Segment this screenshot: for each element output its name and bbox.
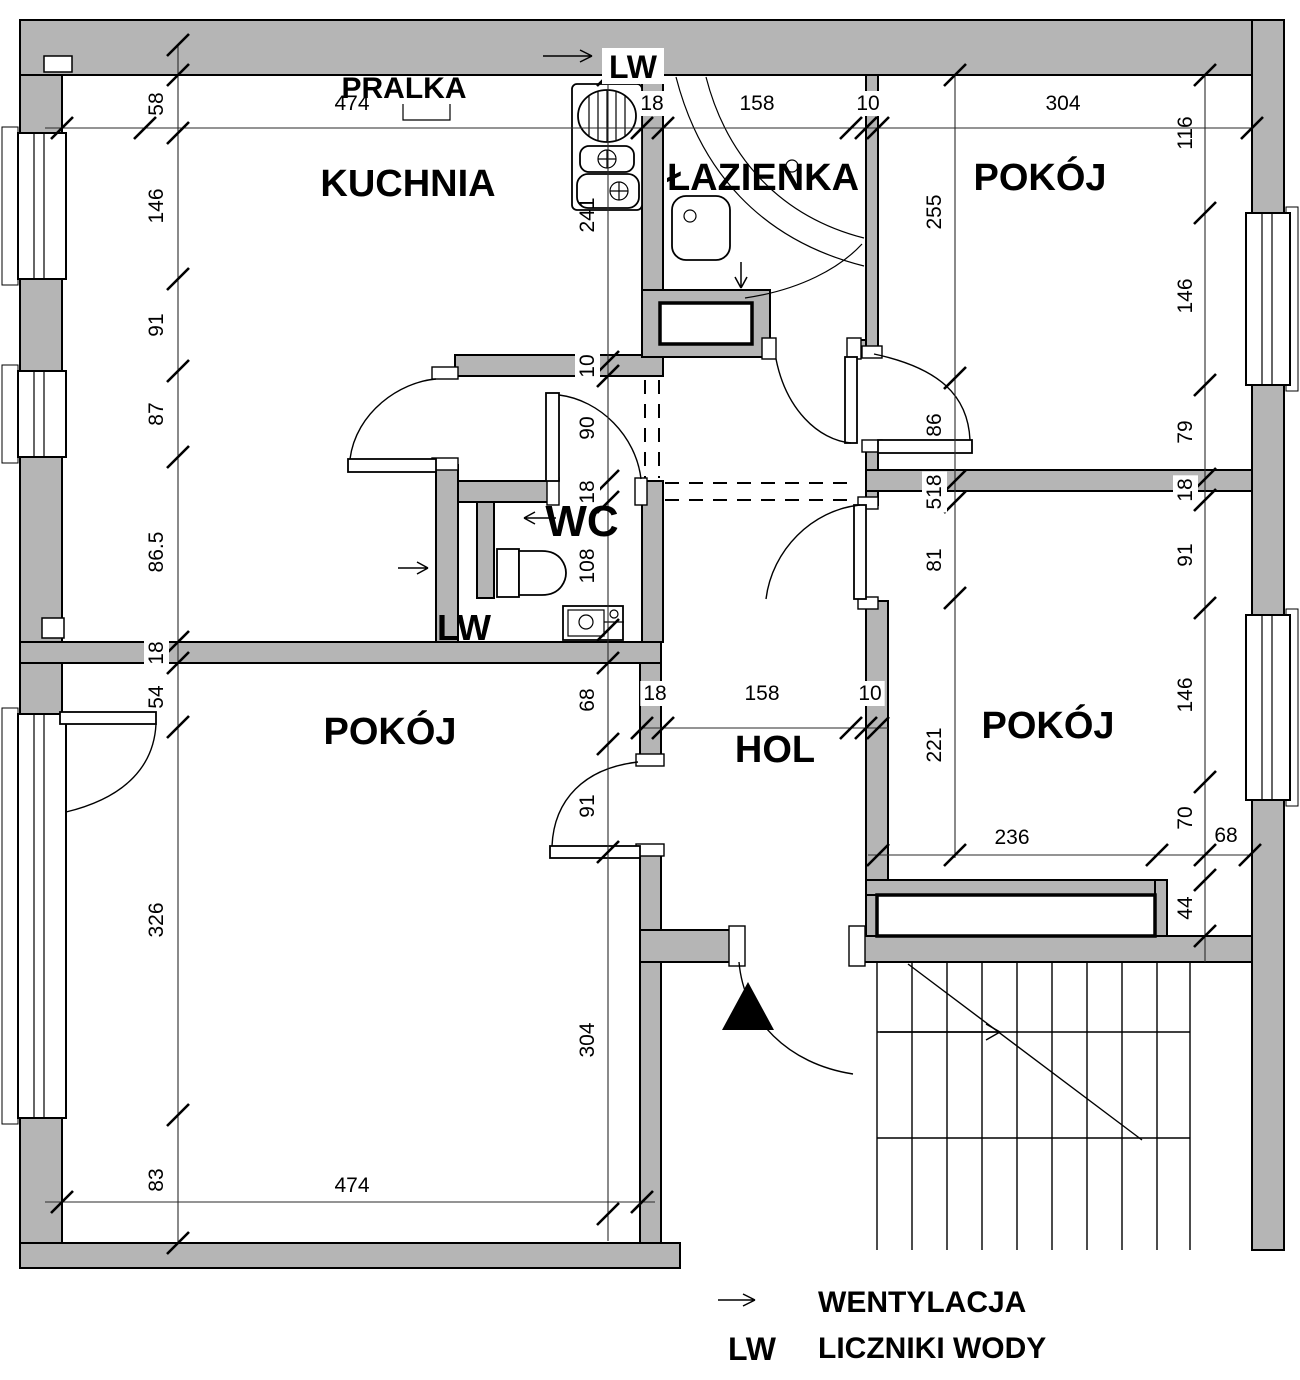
dimension-label: 518 bbox=[923, 474, 946, 509]
room-label-pokoj-top-right: POKÓJ bbox=[973, 155, 1106, 199]
dimension-label: 91 bbox=[1174, 543, 1197, 566]
dimension-label: 116 bbox=[1174, 116, 1197, 149]
dimension-label: 18 bbox=[643, 682, 666, 705]
window-kitchen-lower bbox=[18, 371, 66, 457]
fixtures bbox=[403, 77, 864, 1030]
dimension-label: 91 bbox=[576, 794, 599, 817]
room-bottom-right-door-leaf bbox=[854, 505, 866, 599]
room-area-hol bbox=[663, 502, 866, 930]
dimension-label: 58 bbox=[145, 92, 168, 115]
floor-plan-svg: 58146918786.5185432683474181581030424110… bbox=[0, 0, 1300, 1380]
room-label-pralka: PRALKA bbox=[342, 72, 467, 105]
ventilation-ducts bbox=[660, 303, 1155, 936]
wc-door-arc bbox=[559, 395, 641, 479]
room-label-pokoj-bottom-right: POKÓJ bbox=[981, 703, 1114, 747]
room-bottom-right-door-arc bbox=[766, 505, 860, 599]
dimension-label: 54 bbox=[145, 685, 168, 709]
dimension-label: 236 bbox=[994, 826, 1029, 849]
dimension-label: 87 bbox=[145, 402, 168, 425]
dimension-label: 86 bbox=[923, 413, 946, 436]
floor-plan-page: 58146918786.5185432683474181581030424110… bbox=[0, 0, 1300, 1380]
dimension-label: 304 bbox=[1045, 92, 1080, 115]
window-room-bottom-right bbox=[1246, 615, 1290, 800]
room-label-lw-top: LW bbox=[609, 49, 658, 85]
kitchen-sink bbox=[572, 84, 642, 210]
bathroom-duct bbox=[660, 303, 752, 344]
dimension-label: 18 bbox=[1174, 478, 1197, 501]
room-label-lazienka: ŁAZIENKA bbox=[667, 157, 859, 199]
bathroom-door-arc bbox=[776, 359, 851, 443]
dimension-label: 108 bbox=[576, 548, 599, 583]
vent-arrow-bathroom-icon bbox=[735, 262, 747, 288]
vent-arrow-passage-icon bbox=[398, 562, 428, 574]
dimension-label: 81 bbox=[923, 548, 946, 571]
dimension-label: 146 bbox=[1174, 677, 1197, 712]
dimension-label: 10 bbox=[856, 92, 879, 115]
dimension-label: 91 bbox=[145, 313, 168, 336]
room-label-wc: WC bbox=[545, 497, 618, 546]
dimension-label: 326 bbox=[145, 902, 168, 937]
legend-lw-abbr: LW bbox=[728, 1331, 777, 1367]
kitchen-door-arc bbox=[350, 379, 436, 459]
room-label-pokoj-bottom-left: POKÓJ bbox=[323, 709, 456, 753]
window-room-top-right bbox=[1246, 213, 1290, 385]
dimension-label: 68 bbox=[576, 688, 599, 711]
dimension-label: 255 bbox=[923, 194, 946, 229]
doors bbox=[60, 338, 972, 1074]
bathroom-door-leaf bbox=[845, 357, 857, 443]
bathroom-washbasin bbox=[672, 196, 730, 260]
dimension-label: 70 bbox=[1174, 806, 1197, 829]
legend: WENTYLACJA LW LICZNIKI WODY bbox=[718, 1286, 1046, 1367]
staircase bbox=[877, 962, 1190, 1250]
dashed-openings bbox=[645, 380, 851, 500]
wc-door-leaf bbox=[546, 393, 559, 481]
dimension-label: 44 bbox=[1174, 896, 1197, 920]
balcony-door-leaf bbox=[60, 712, 156, 724]
legend-lw-label: LICZNIKI WODY bbox=[818, 1332, 1046, 1365]
dimension-label: 474 bbox=[334, 1174, 369, 1197]
dimension-label: 79 bbox=[1174, 420, 1197, 443]
window-kitchen-upper bbox=[18, 133, 66, 279]
dimension-label: 221 bbox=[923, 727, 946, 762]
dimension-label: 68 bbox=[1214, 824, 1237, 847]
dimension-label: 18 bbox=[640, 92, 663, 115]
legend-ventilation-arrow-icon bbox=[718, 1294, 755, 1306]
room-label-lw-wc: LW bbox=[437, 607, 491, 648]
wall-recess bbox=[42, 618, 64, 638]
dimension-label: 90 bbox=[576, 416, 599, 439]
dimension-label: 86.5 bbox=[145, 532, 168, 573]
room-bottom-left-door-leaf bbox=[550, 846, 640, 858]
entrance-triangle-icon bbox=[722, 982, 774, 1030]
dimension-label: 158 bbox=[744, 682, 779, 705]
dimension-label: 158 bbox=[739, 92, 774, 115]
balcony-door-window bbox=[18, 714, 66, 1118]
dimension-label: 10 bbox=[858, 682, 881, 705]
balcony-door-arc bbox=[66, 724, 156, 812]
wall-recess bbox=[44, 56, 72, 72]
room-label-kuchnia: KUCHNIA bbox=[320, 163, 495, 205]
walls bbox=[20, 20, 1284, 1268]
dimension-label: 18 bbox=[145, 641, 168, 664]
toilet bbox=[497, 549, 566, 597]
dimension-label: 10 bbox=[576, 354, 599, 377]
stairwell-duct bbox=[877, 895, 1155, 936]
dimension-label: 304 bbox=[576, 1022, 599, 1057]
kitchen-door-leaf bbox=[348, 459, 436, 472]
room-top-right-door-arc bbox=[874, 354, 970, 440]
room-top-right-door-leaf bbox=[878, 440, 972, 453]
washing-machine-mark bbox=[403, 104, 450, 120]
area-staircase bbox=[877, 962, 1190, 1250]
legend-ventilation-label: WENTYLACJA bbox=[818, 1286, 1026, 1319]
dimension-label: 83 bbox=[145, 1168, 168, 1191]
room-label-hol: HOL bbox=[735, 729, 815, 771]
dimension-label: 146 bbox=[1174, 278, 1197, 313]
dimension-label: 241 bbox=[576, 197, 599, 232]
dimension-label: 146 bbox=[145, 188, 168, 223]
